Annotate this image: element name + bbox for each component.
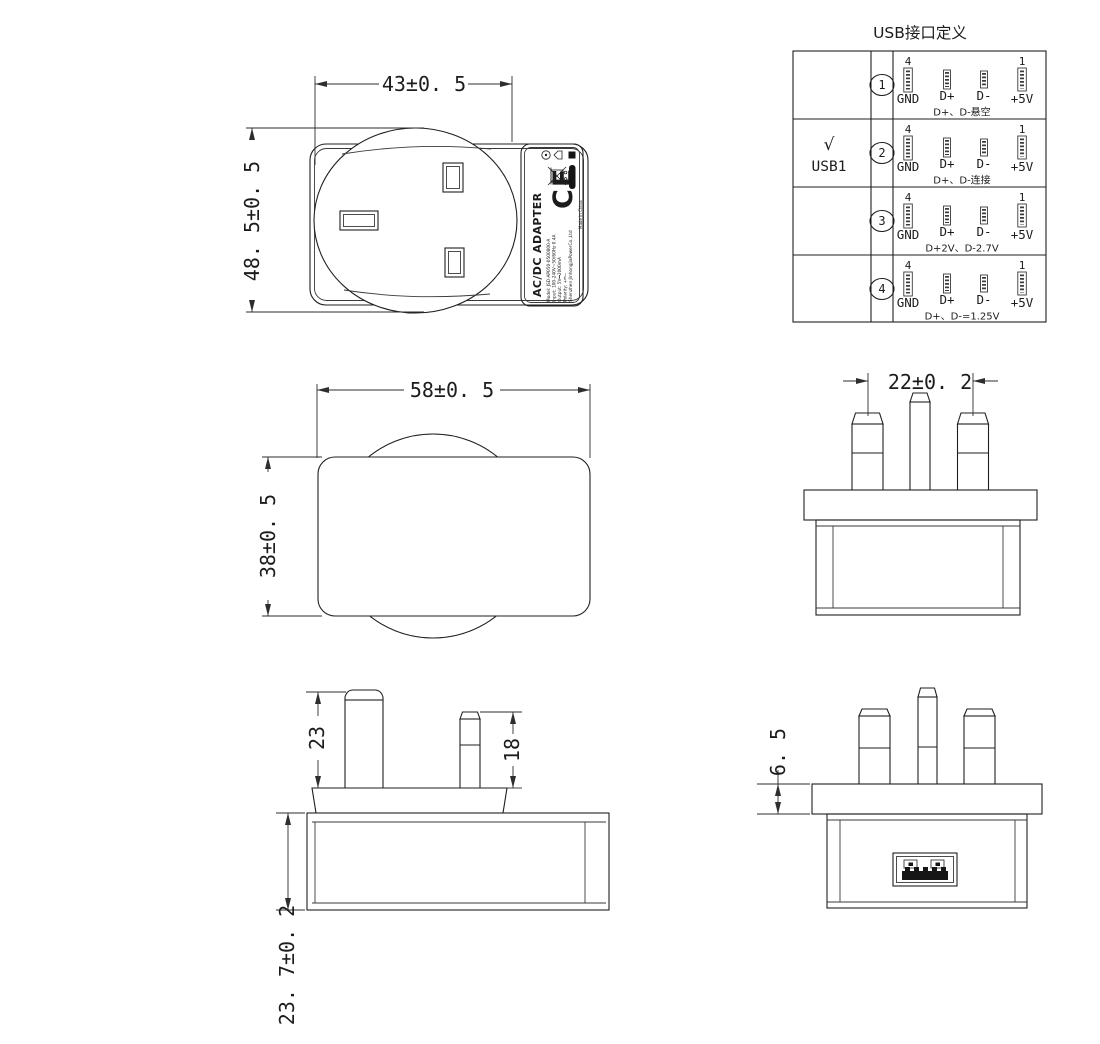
usb-table-row: 1 4 1 GND D+ D- +5V D+、D-悬空 [870,55,1034,119]
pin1-number: 1 [1019,259,1026,272]
row-note: D+2V、D-2.7V [925,244,998,255]
usb-table-row: 4 4 1 GND D+ D- +5V D+、D-=1.25V [870,259,1034,323]
dplus-pin-icon [944,138,951,157]
dim-body-depth: 23. 7±0. 2 [275,813,305,1025]
v5-label: +5V [1011,159,1034,174]
dim-line-pin-label: 18 [500,738,524,762]
dim-front-width-label: 43±0. 5 [382,72,466,96]
circle-cert-icon [542,151,550,159]
check-mark: √ [824,135,835,155]
gnd-label: GND [897,91,920,106]
dminus-pin-icon [981,71,988,88]
flange [812,784,1042,814]
label-model-line: Model: JSD-AP050-0500800-A [546,239,552,302]
dplus-label: D+ [939,88,954,103]
gnd-pin-icon [904,204,913,228]
row-number: 4 [878,282,885,296]
class-ii-icon [569,152,576,159]
v5-pin-icon [1018,272,1027,295]
v5-pin-icon [1018,204,1027,227]
usb-contacts [902,867,948,880]
rating-label: AC/DC ADAPTER Model: JSD-AP050-0500800-A… [521,144,583,306]
neutral-pin [964,709,995,788]
v5-label: +5V [1011,295,1034,310]
row-number: 1 [878,78,885,92]
gnd-pin-icon [904,136,913,160]
body-outline [307,813,609,910]
adapter-drawing: AC/DC ADAPTER Model: JSD-AP050-0500800-A… [0,0,1100,1044]
v5-pin-icon [1018,136,1027,159]
dim-back-width-label: 58±0. 5 [410,378,494,402]
dim-flange-thickness: 6. 5 [757,728,810,814]
dminus-label: D- [976,88,991,103]
dplus-pin-icon [944,70,951,89]
dim-body-depth-label: 23. 7±0. 2 [275,905,299,1025]
gnd-label: GND [897,227,920,242]
dim-earth-pin-length: 23 [305,692,346,788]
v5-pin-icon [1018,68,1027,91]
dim-back-height: 38±0. 5 [256,457,322,616]
gnd-pin-icon [904,68,913,92]
dminus-label: D- [976,224,991,239]
label-product-name: AC/DC ADAPTER [531,192,544,297]
pin4-number: 4 [905,123,912,136]
v5-label: +5V [1011,91,1034,106]
dminus-pin-icon [981,275,988,292]
line-pin [859,709,890,788]
dim-pin-pitch-label: 22±0. 2 [888,370,972,394]
row-number: 3 [878,214,885,228]
technical-drawing-page: AC/DC ADAPTER Model: JSD-AP050-0500800-A… [0,0,1100,1044]
pin-side-view: 23 18 23. 7±0. 2 [275,690,609,1025]
body-outline [318,457,590,616]
dim-flange-label: 6. 5 [766,728,790,776]
usb-definition-table: USB接口定义 √ USB1 1 4 1 GND D+ D- +5V D+、D-… [793,24,1046,323]
dim-earth-pin-label: 23 [305,726,329,750]
dim-back-height-label: 38±0. 5 [256,494,280,578]
flange [312,788,507,813]
checked-port-cell: √ USB1 [812,135,847,175]
gnd-label: GND [897,295,920,310]
pin-front-view: 22±0. 2 [804,370,1037,615]
dplus-label: D+ [939,292,954,307]
made-in-text: Made in China [578,200,583,229]
gnd-label: GND [897,159,920,174]
dim-back-width: 58±0. 5 [317,378,590,458]
dplus-label: D+ [939,156,954,171]
checked-port-label: USB1 [812,159,847,175]
line-pin [852,413,883,494]
dplus-label: D+ [939,224,954,239]
earth-pin [345,690,383,792]
dim-front-height-label: 48. 5±0. 5 [240,161,264,281]
label-output-line: Output: 5V⎓2000mA [557,257,563,302]
pin4-number: 4 [905,259,912,272]
usb-port [893,853,957,886]
dplus-pin-icon [944,206,951,225]
label-input-line: Input: 100-240V~50/60Hz 0.4A [552,234,558,302]
dim-line-pin-length: 18 [480,712,524,788]
pin1-number: 1 [1019,123,1026,136]
pin1-number: 1 [1019,191,1026,204]
row-note: D+、D-=1.25V [925,312,1000,323]
bottom-view-usb: 6. 5 [757,688,1042,908]
row-note: D+、D-连接 [933,174,990,187]
back-view: 58±0. 5 38±0. 5 [256,378,590,638]
usb-table-title: USB接口定义 [873,24,967,42]
label-company-line: Shenzhen JinhongjiaPowerCo.,Ltd [568,230,574,302]
row-note: D+、D-悬空 [933,106,990,119]
label-polarity-line: Polarity: +⎓− [563,272,569,302]
dminus-label: D- [976,156,991,171]
earth-pin [918,688,937,788]
plug-face [314,128,517,313]
dminus-label: D- [976,292,991,307]
front-view: AC/DC ADAPTER Model: JSD-AP050-0500800-A… [240,72,588,313]
pin4-number: 4 [905,191,912,204]
body-outline [816,520,1020,615]
dminus-pin-icon [981,207,988,224]
black-bar-mark [569,165,576,189]
dminus-pin-icon [981,139,988,156]
neutral-pin [958,413,989,494]
line-pin [460,712,480,792]
v5-label: +5V [1011,227,1034,242]
flange [804,490,1037,520]
pin4-number: 4 [905,55,912,68]
earth-pin [910,393,930,494]
indoor-use-icon [554,151,562,159]
body-outline [827,814,1027,908]
usb-table-row: 3 4 1 GND D+ D- +5V D+2V、D-2.7V [870,191,1034,255]
usb-table-row: 2 4 1 GND D+ D- +5V D+、D-连接 [870,123,1034,187]
dplus-pin-icon [944,274,951,293]
gnd-pin-icon [904,272,913,296]
pin1-number: 1 [1019,55,1026,68]
row-number: 2 [878,146,885,160]
